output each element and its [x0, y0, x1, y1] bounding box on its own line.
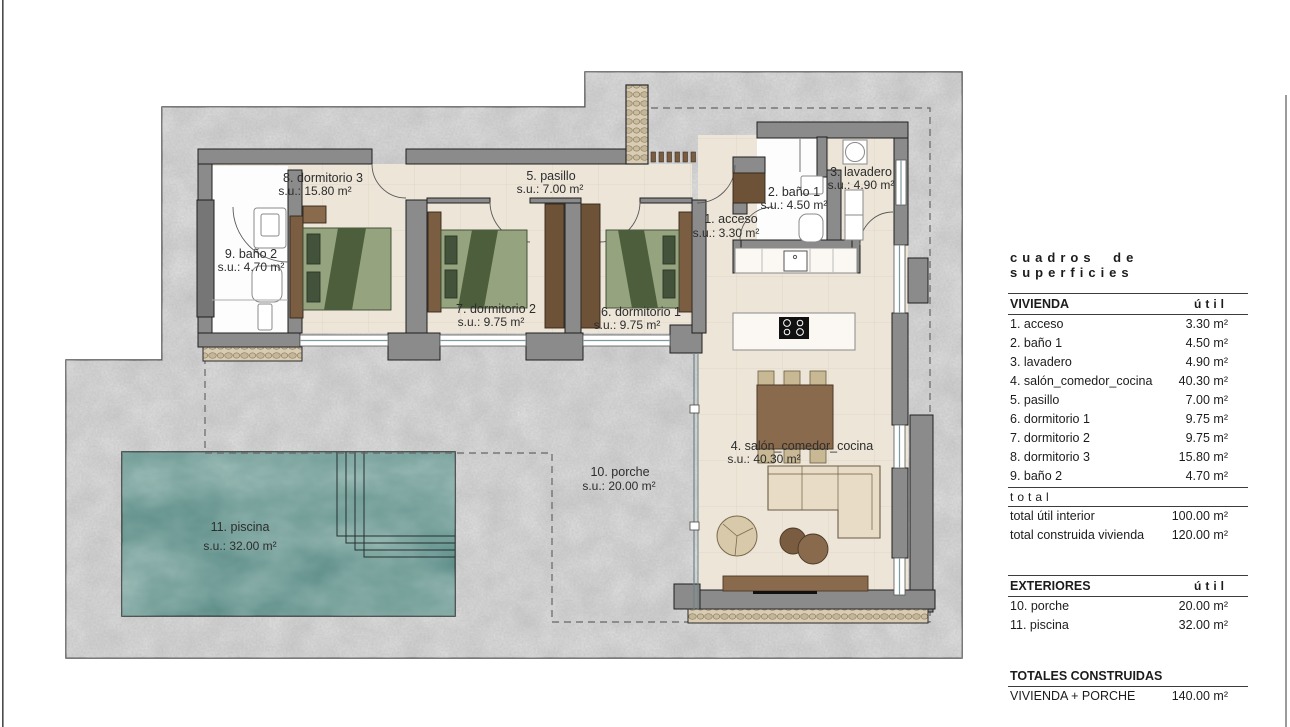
bathroom2-shutter — [197, 200, 214, 317]
table-row: 2. baño 14.50 m² — [1008, 334, 1248, 353]
vivienda-unit-col: útil — [1194, 296, 1248, 312]
room-label-piscina: 11. piscina — [211, 520, 270, 534]
exteriores-unit-col: útil — [1194, 578, 1248, 594]
tv — [753, 591, 817, 594]
room-label-porche: 10. porche — [590, 465, 649, 479]
floor-plan-sheet: 1. acceso s.u.: 3.30 m² 2. baño 1 s.u.: … — [0, 0, 1290, 727]
total-word-row: total — [1008, 487, 1248, 507]
svg-text:s.u.: 7.00 m²: s.u.: 7.00 m² — [517, 182, 584, 196]
room-label-dormitorio3: 8. dormitorio 3 — [283, 171, 363, 185]
surface-table-panel: cuadros de superficies VIVIENDA útil 1. … — [1008, 250, 1248, 727]
table-row: 3. lavadero4.90 m² — [1008, 353, 1248, 372]
vivienda-header-row: VIVIENDA útil — [1008, 293, 1248, 315]
room-label-lavadero: 3. lavadero — [830, 165, 892, 179]
room-label-acceso: 1. acceso — [704, 212, 758, 226]
svg-text:s.u.: 15.80 m²: s.u.: 15.80 m² — [278, 184, 351, 198]
sheet-frame-left — [2, 0, 4, 727]
svg-text:s.u.: 9.75 m²: s.u.: 9.75 m² — [458, 315, 525, 329]
totales-construidas-header: TOTALES CONSTRUIDAS — [1008, 667, 1248, 687]
exteriores-header: EXTERIORES — [1008, 578, 1091, 594]
table-row: 10. porche20.00 m² — [1008, 597, 1248, 616]
svg-text:s.u.: 9.75 m²: s.u.: 9.75 m² — [594, 318, 661, 332]
svg-text:s.u.: 4.70 m²: s.u.: 4.70 m² — [218, 260, 285, 274]
table-row: 8. dormitorio 315.80 m² — [1008, 448, 1248, 467]
room-label-bano2: 9. baño 2 — [225, 247, 277, 261]
table-row: 7. dormitorio 29.75 m² — [1008, 429, 1248, 448]
kitchen-sink — [784, 251, 807, 271]
table-row: 4. salón_comedor_cocina40.30 m² — [1008, 372, 1248, 391]
svg-text:s.u.: 4.50 m²: s.u.: 4.50 m² — [761, 198, 828, 212]
exteriores-header-row: EXTERIORES útil — [1008, 575, 1248, 597]
panel-title: cuadros de superficies — [1010, 250, 1248, 280]
cooktop — [779, 317, 809, 339]
svg-text:s.u.: 3.30 m²: s.u.: 3.30 m² — [693, 226, 760, 240]
table-row: 1. acceso3.30 m² — [1008, 315, 1248, 334]
tv-cabinet — [723, 576, 868, 591]
total-row: total útil interior100.00 m² — [1008, 507, 1248, 526]
total-row: total construida vivienda120.00 m² — [1008, 526, 1248, 545]
svg-text:s.u.: 32.00 m²: s.u.: 32.00 m² — [203, 539, 276, 553]
vivienda-header: VIVIENDA — [1008, 296, 1069, 312]
table-row: 5. pasillo7.00 m² — [1008, 391, 1248, 410]
table-row: 9. baño 24.70 m² — [1008, 467, 1248, 486]
sheet-frame-right — [1285, 95, 1287, 727]
svg-text:s.u.: 40.30 m²: s.u.: 40.30 m² — [727, 452, 800, 466]
table-row: 6. dormitorio 19.75 m² — [1008, 410, 1248, 429]
room-label-salon: 4. salón_comedor_cocina — [731, 439, 873, 453]
table-row: 11. piscina32.00 m² — [1008, 616, 1248, 635]
coffee-table-large — [798, 534, 828, 564]
room-label-dormitorio1: 6. dormitorio 1 — [601, 305, 681, 319]
svg-text:s.u.: 4.90 m²: s.u.: 4.90 m² — [828, 178, 895, 192]
room-label-pasillo: 5. pasillo — [526, 169, 575, 183]
svg-text:s.u.: 20.00 m²: s.u.: 20.00 m² — [582, 479, 655, 493]
entry-stone-column — [626, 85, 648, 164]
totales-row: VIVIENDA + PORCHE140.00 m² — [1008, 687, 1248, 706]
room-label-dormitorio2: 7. dormitorio 2 — [456, 302, 536, 316]
pool — [122, 452, 455, 616]
room-label-bano1: 2. baño 1 — [768, 185, 820, 199]
